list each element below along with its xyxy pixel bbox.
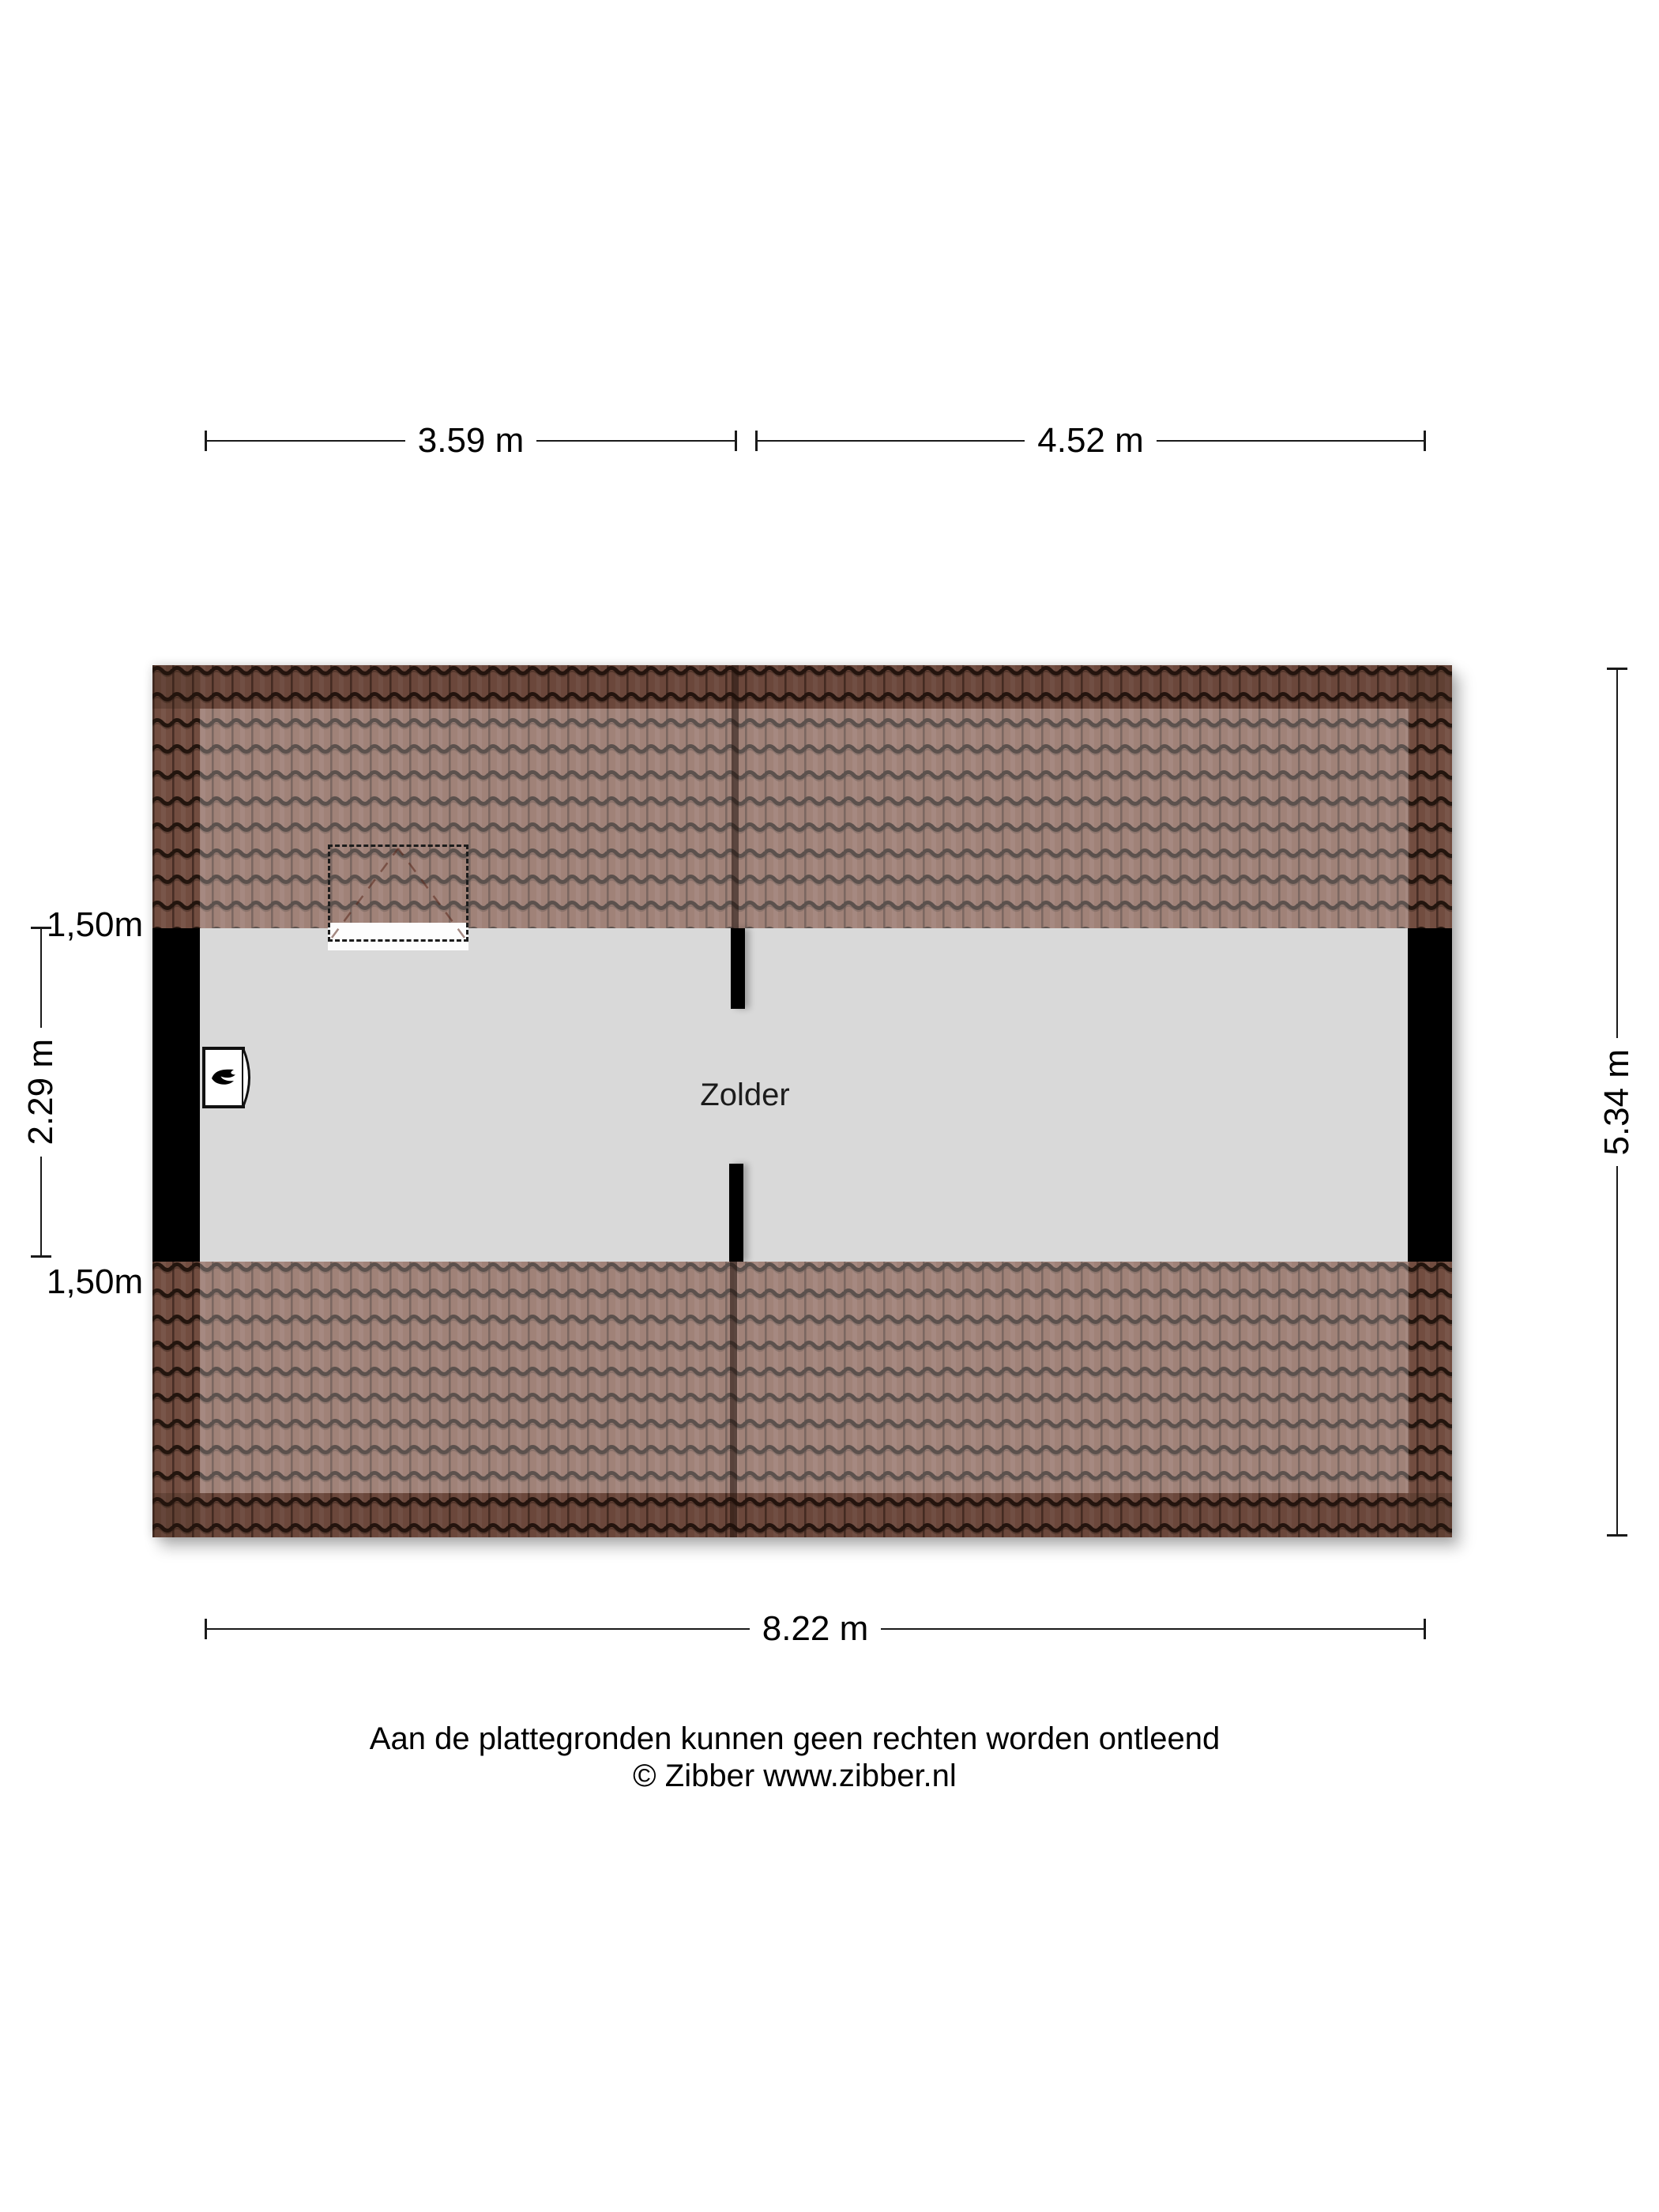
dim-line: [40, 929, 42, 1028]
dim-left-lower-label: 1,50m: [32, 1262, 158, 1302]
wall-left: [152, 928, 200, 1262]
roof-window-swing-lines: [330, 847, 466, 939]
wall-right: [1408, 928, 1452, 1262]
copyright-line: © Zibber www.zibber.nl: [202, 1758, 1387, 1795]
dim-tick: [735, 431, 737, 451]
dim-bottom: 8.22 m: [205, 1612, 1426, 1646]
dim-line: [1157, 440, 1424, 442]
dim-line: [1616, 1166, 1618, 1534]
dim-top-right: 4.52 m: [755, 423, 1426, 458]
dim-line: [758, 440, 1025, 442]
dim-right-label: 5.34 m: [1597, 1049, 1637, 1156]
dim-top-left: 3.59 m: [205, 423, 737, 458]
dim-tick: [1424, 431, 1426, 451]
wall-divider-bottom: [729, 1164, 743, 1262]
dim-tick: [1607, 1534, 1627, 1537]
boiler: [202, 1047, 245, 1108]
flame-icon: [210, 1067, 237, 1088]
dim-line: [207, 1628, 750, 1630]
room-label-zolder: Zolder: [626, 1078, 863, 1113]
dim-line: [536, 440, 735, 442]
dim-line: [881, 1628, 1424, 1630]
roof-window-icon: [328, 845, 468, 942]
boiler-door-arc: [243, 1047, 258, 1108]
dim-line: [207, 440, 405, 442]
floorplan-page: { "dims": { "top_left": "3.59 m", "top_r…: [0, 0, 1659, 2212]
dim-tick: [1424, 1619, 1426, 1639]
disclaimer-line: Aan de plattegronden kunnen geen rechten…: [202, 1721, 1387, 1758]
dim-line: [1616, 670, 1618, 1038]
footer-disclaimer: Aan de plattegronden kunnen geen rechten…: [202, 1721, 1387, 1795]
dim-left-middle: 2.29 m: [24, 927, 58, 1258]
dim-bottom-label: 8.22 m: [762, 1609, 869, 1649]
dim-tick: [31, 1255, 51, 1258]
wall-divider-top: [731, 928, 745, 1009]
dim-top-right-label: 4.52 m: [1037, 421, 1144, 461]
dim-line: [40, 1157, 42, 1255]
dim-right: 5.34 m: [1600, 668, 1635, 1537]
dim-top-left-label: 3.59 m: [418, 421, 525, 461]
dim-left-middle-label: 2.29 m: [21, 1039, 61, 1145]
